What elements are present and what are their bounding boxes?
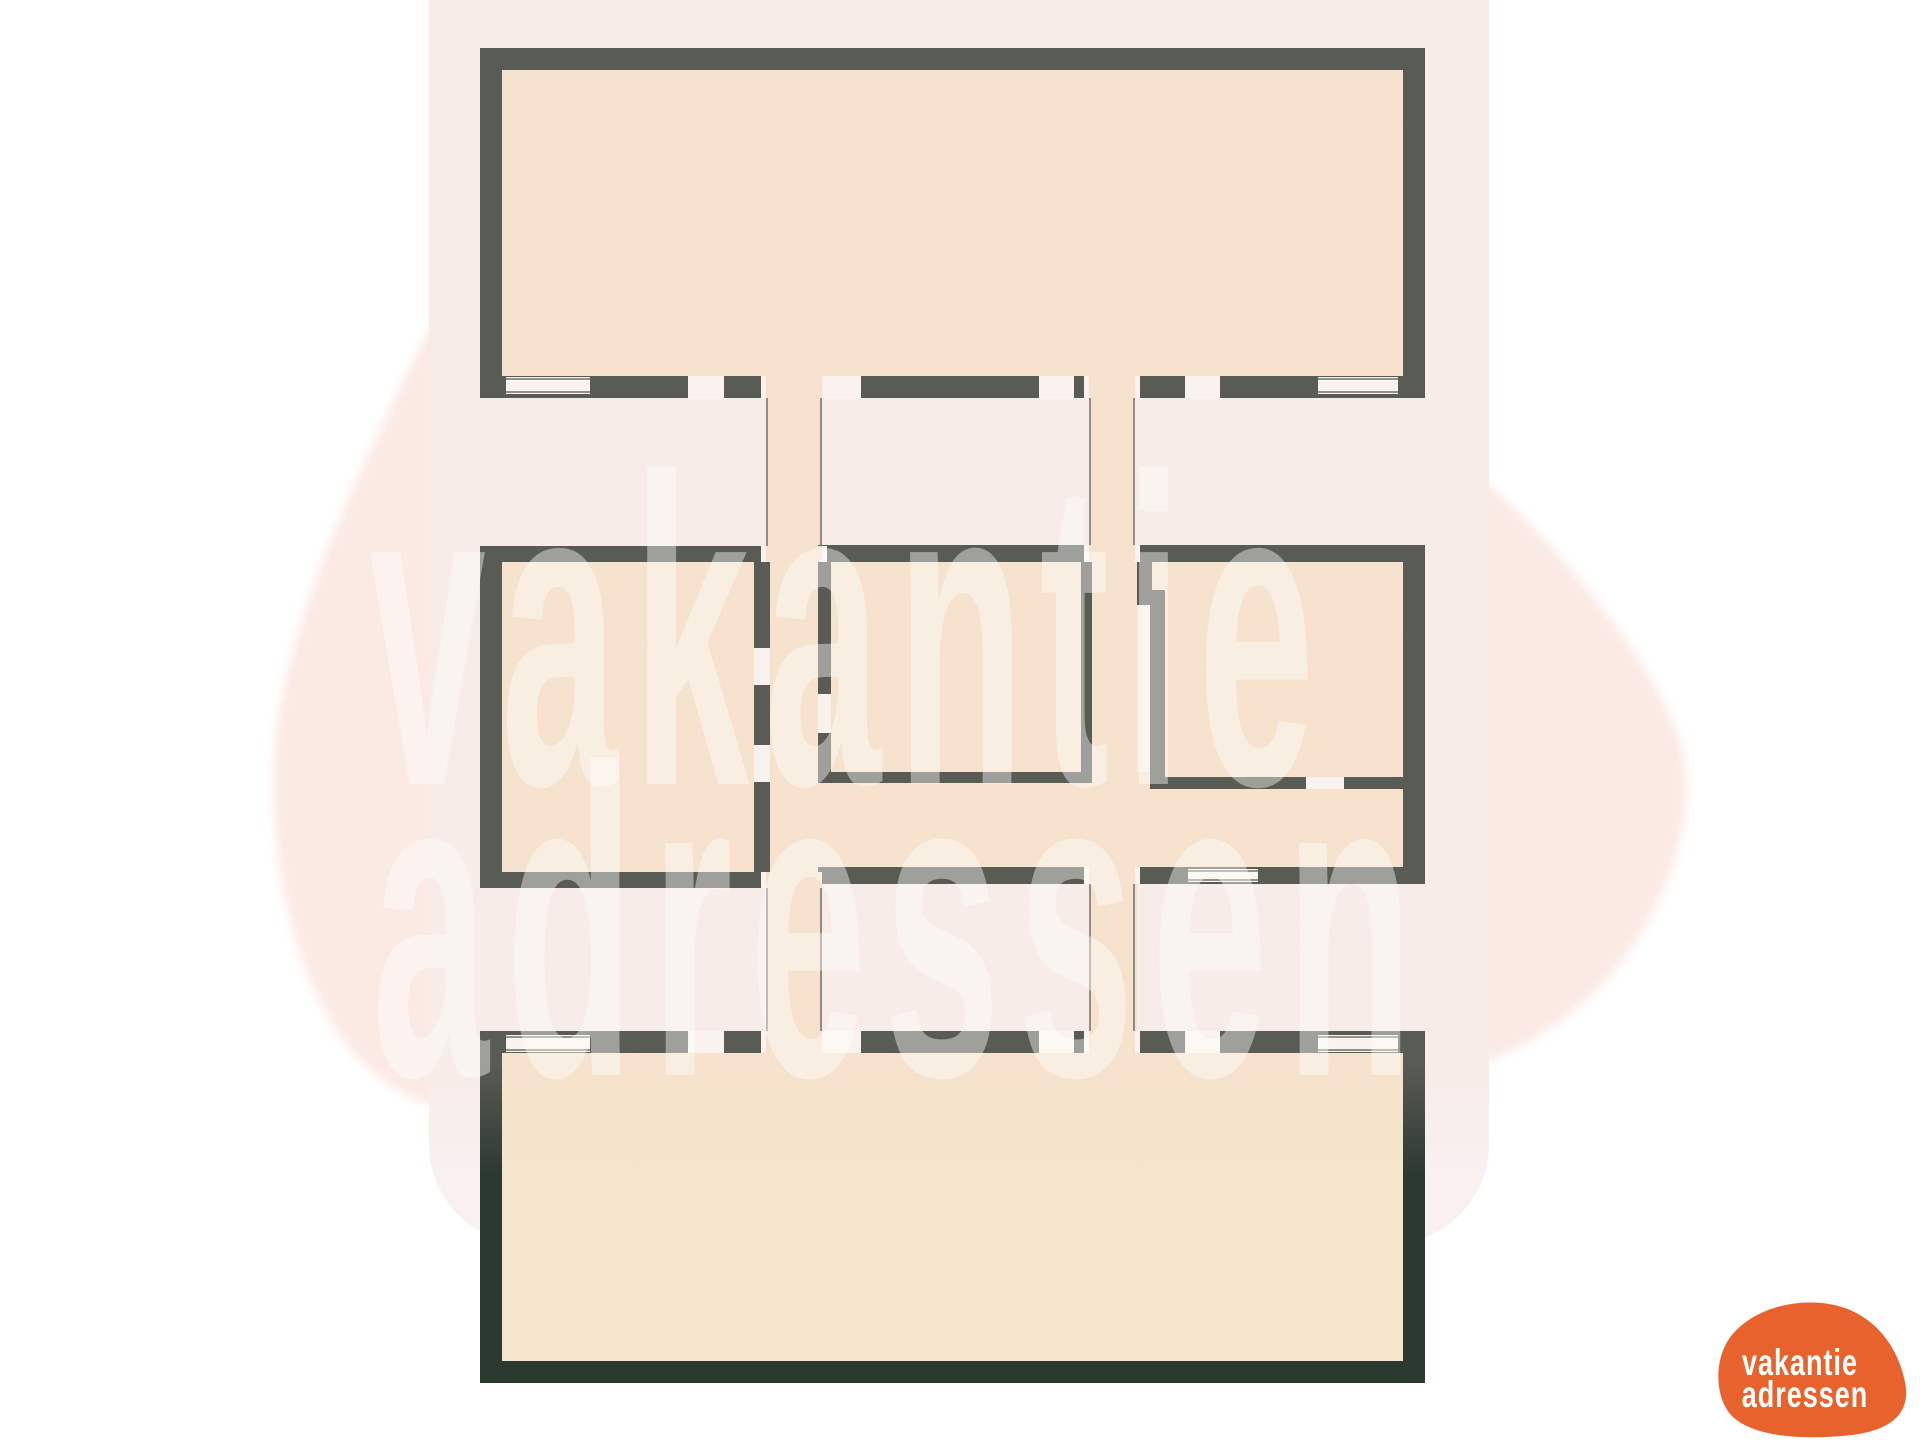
svg-text:adressen: adressen <box>372 678 1430 1168</box>
svg-text:adressen: adressen <box>1742 1374 1868 1415</box>
